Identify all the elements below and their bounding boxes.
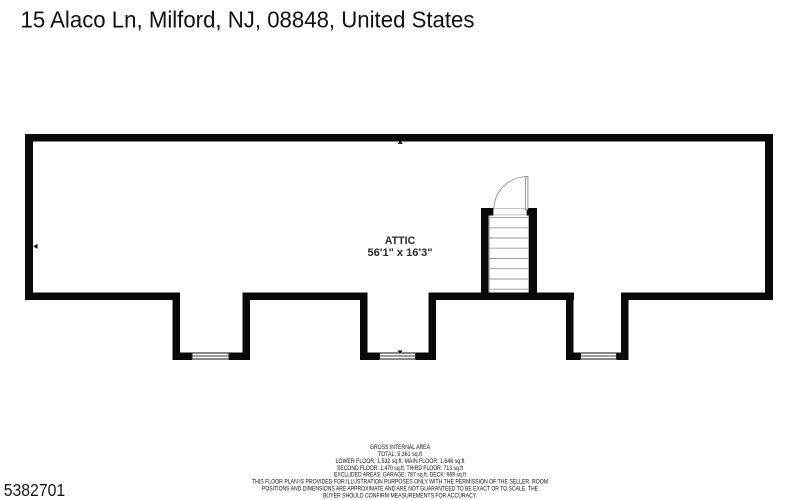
svg-text:POSITIONS AND DIMENSIONS ARE A: POSITIONS AND DIMENSIONS ARE APPROXIMATE… bbox=[262, 486, 538, 493]
svg-text:15 Alaco Ln, Milford, NJ, 0884: 15 Alaco Ln, Milford, NJ, 08848, United … bbox=[21, 7, 475, 33]
svg-text:GROSS INTERNAL AREA: GROSS INTERNAL AREA bbox=[370, 444, 431, 451]
svg-text:TOTAL: 5,361 sq.ft: TOTAL: 5,361 sq.ft bbox=[378, 451, 422, 458]
svg-text:THIS FLOOR PLAN IS PROVIDED FO: THIS FLOOR PLAN IS PROVIDED FOR ILLUSTRA… bbox=[252, 479, 548, 486]
svg-text:LOWER FLOOR: 1,532 sq.ft, MAIN: LOWER FLOOR: 1,532 sq.ft, MAIN FLOOR: 1,… bbox=[336, 458, 465, 465]
svg-text:56'1" x 16'3": 56'1" x 16'3" bbox=[368, 247, 433, 259]
svg-text:EXCLUDED AREAS: GARAGE: 787 sq: EXCLUDED AREAS: GARAGE: 787 sq.ft, DECK:… bbox=[334, 472, 466, 479]
svg-text:5382701: 5382701 bbox=[4, 480, 66, 500]
svg-text:ATTIC: ATTIC bbox=[385, 235, 416, 247]
svg-text:BUYER SHOULD CONFIRM MEASUREME: BUYER SHOULD CONFIRM MEASUREMENTS FOR AC… bbox=[323, 493, 477, 500]
